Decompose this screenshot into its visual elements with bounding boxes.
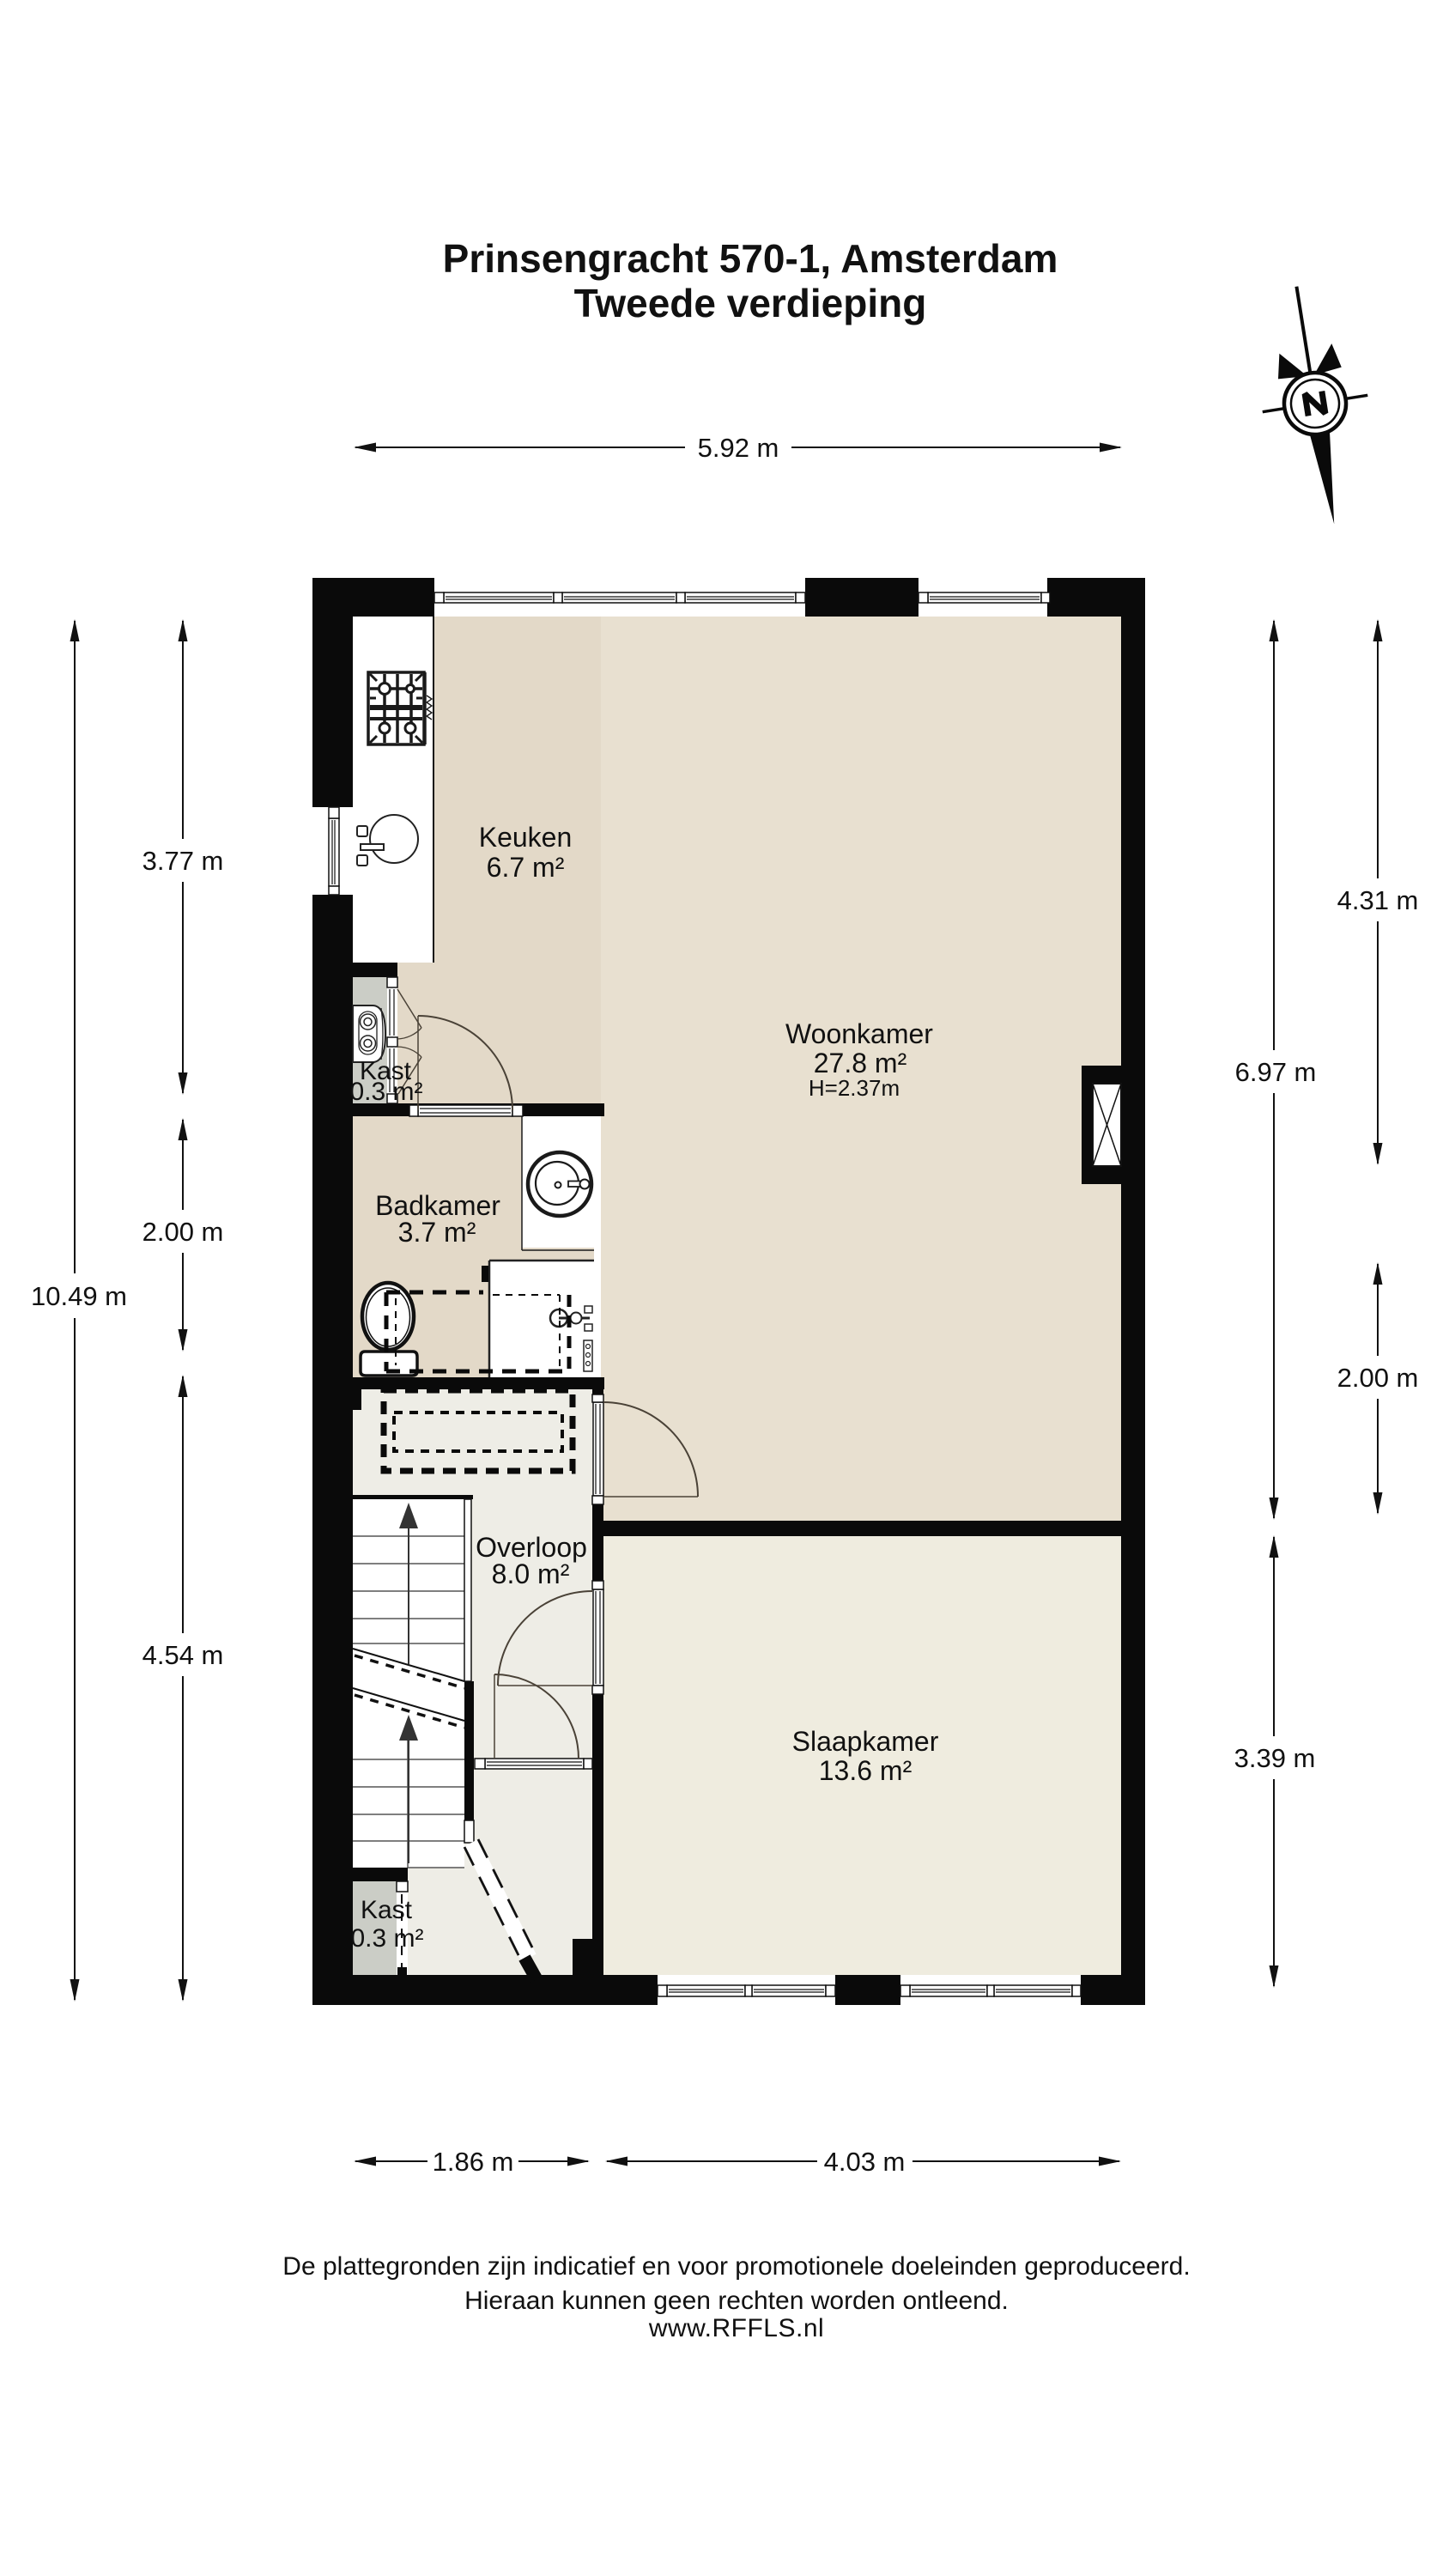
svg-text:10.49 m: 10.49 m bbox=[31, 1281, 127, 1311]
svg-text:Tweede verdieping: Tweede verdieping bbox=[574, 281, 927, 325]
svg-text:1.86 m: 1.86 m bbox=[433, 2147, 514, 2177]
svg-text:Hieraan kunnen geen rechten wo: Hieraan kunnen geen rechten worden ontle… bbox=[464, 2287, 1009, 2315]
svg-text:6.97 m: 6.97 m bbox=[1235, 1057, 1317, 1087]
svg-text:www.RFFLS.nl: www.RFFLS.nl bbox=[648, 2314, 824, 2342]
svg-text:H=2.37m: H=2.37m bbox=[809, 1075, 900, 1101]
svg-text:Woonkamer: Woonkamer bbox=[785, 1018, 933, 1049]
svg-text:13.6 m²: 13.6 m² bbox=[819, 1755, 912, 1786]
svg-text:2.00 m: 2.00 m bbox=[1337, 1363, 1419, 1393]
svg-text:3.39 m: 3.39 m bbox=[1234, 1743, 1316, 1773]
svg-text:4.54 m: 4.54 m bbox=[142, 1640, 224, 1670]
svg-text:3.77 m: 3.77 m bbox=[142, 846, 224, 876]
svg-text:3.7 m²: 3.7 m² bbox=[398, 1217, 476, 1248]
svg-text:Prinsengracht 570-1, Amsterdam: Prinsengracht 570-1, Amsterdam bbox=[443, 236, 1058, 281]
svg-text:6.7 m²: 6.7 m² bbox=[487, 852, 565, 883]
svg-text:4.31 m: 4.31 m bbox=[1337, 885, 1419, 915]
svg-text:8.0 m²: 8.0 m² bbox=[492, 1558, 570, 1589]
svg-text:Kast: Kast bbox=[361, 1896, 413, 1924]
svg-text:2.00 m: 2.00 m bbox=[142, 1217, 224, 1247]
svg-text:27.8 m²: 27.8 m² bbox=[814, 1048, 907, 1078]
svg-text:4.03 m: 4.03 m bbox=[824, 2147, 906, 2177]
svg-text:Slaapkamer: Slaapkamer bbox=[792, 1726, 939, 1757]
svg-text:De plattegronden zijn indicati: De plattegronden zijn indicatief en voor… bbox=[282, 2252, 1190, 2281]
svg-text:5.92 m: 5.92 m bbox=[698, 433, 779, 463]
svg-text:0.3 m²: 0.3 m² bbox=[349, 1078, 422, 1106]
svg-text:Keuken: Keuken bbox=[479, 822, 573, 853]
svg-text:0.3 m²: 0.3 m² bbox=[350, 1924, 423, 1953]
